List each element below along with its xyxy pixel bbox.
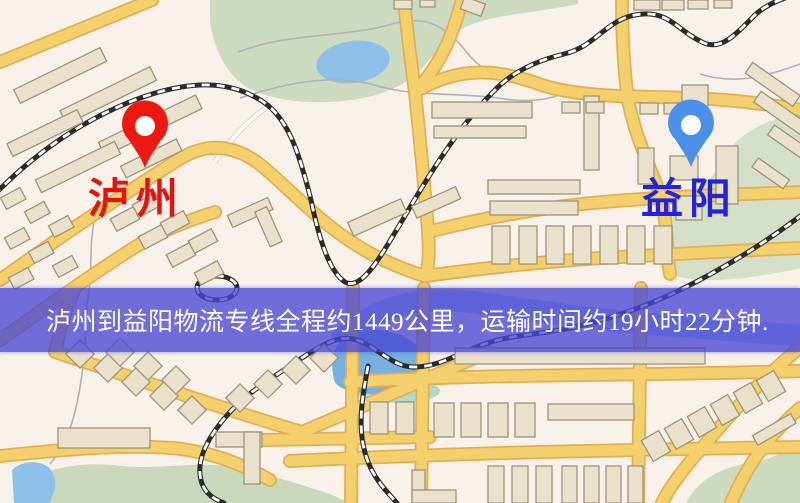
origin-label: 泸州 — [88, 179, 184, 221]
map-card: 泸州 益阳 泸州到益阳物流专线全程约1449公里，运输时间约19小时22分钟. — [0, 0, 800, 503]
destination-label: 益阳 — [641, 179, 737, 221]
map-canvas — [0, 0, 800, 503]
info-banner: 泸州到益阳物流专线全程约1449公里，运输时间约19小时22分钟. — [0, 288, 800, 352]
stream-pool — [12, 462, 55, 503]
banner-text: 泸州到益阳物流专线全程约1449公里，运输时间约19小时22分钟. — [0, 302, 769, 338]
